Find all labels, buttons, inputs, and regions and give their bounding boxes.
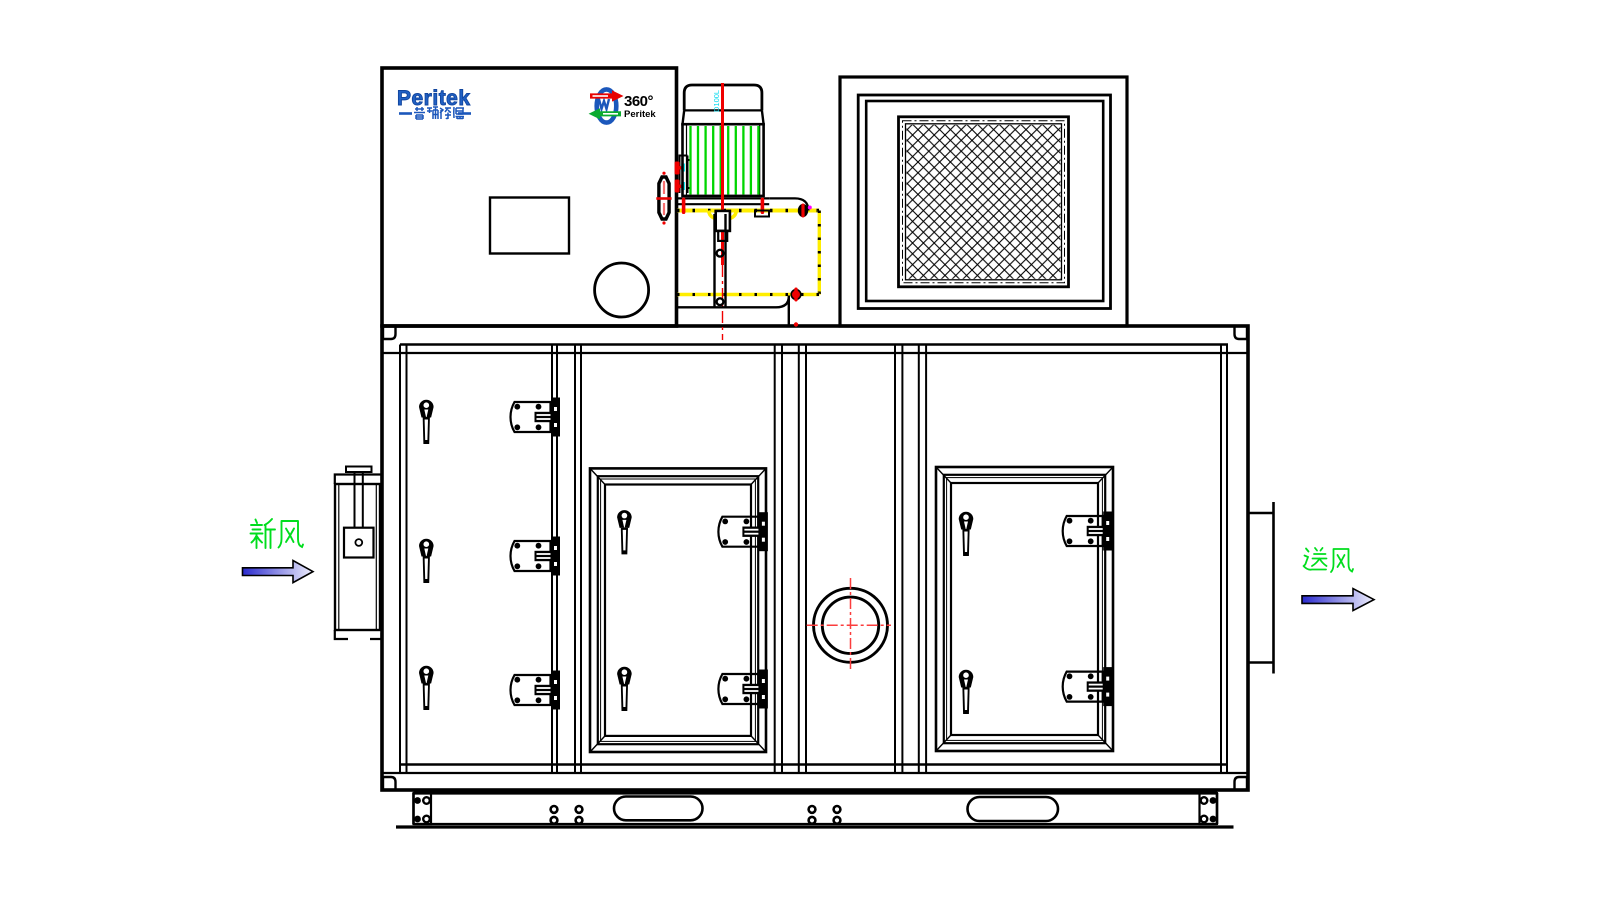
svg-text:Peritek: Peritek <box>624 109 656 120</box>
svg-text:D100L: D100L <box>712 90 721 112</box>
svg-text:360°: 360° <box>624 93 654 110</box>
